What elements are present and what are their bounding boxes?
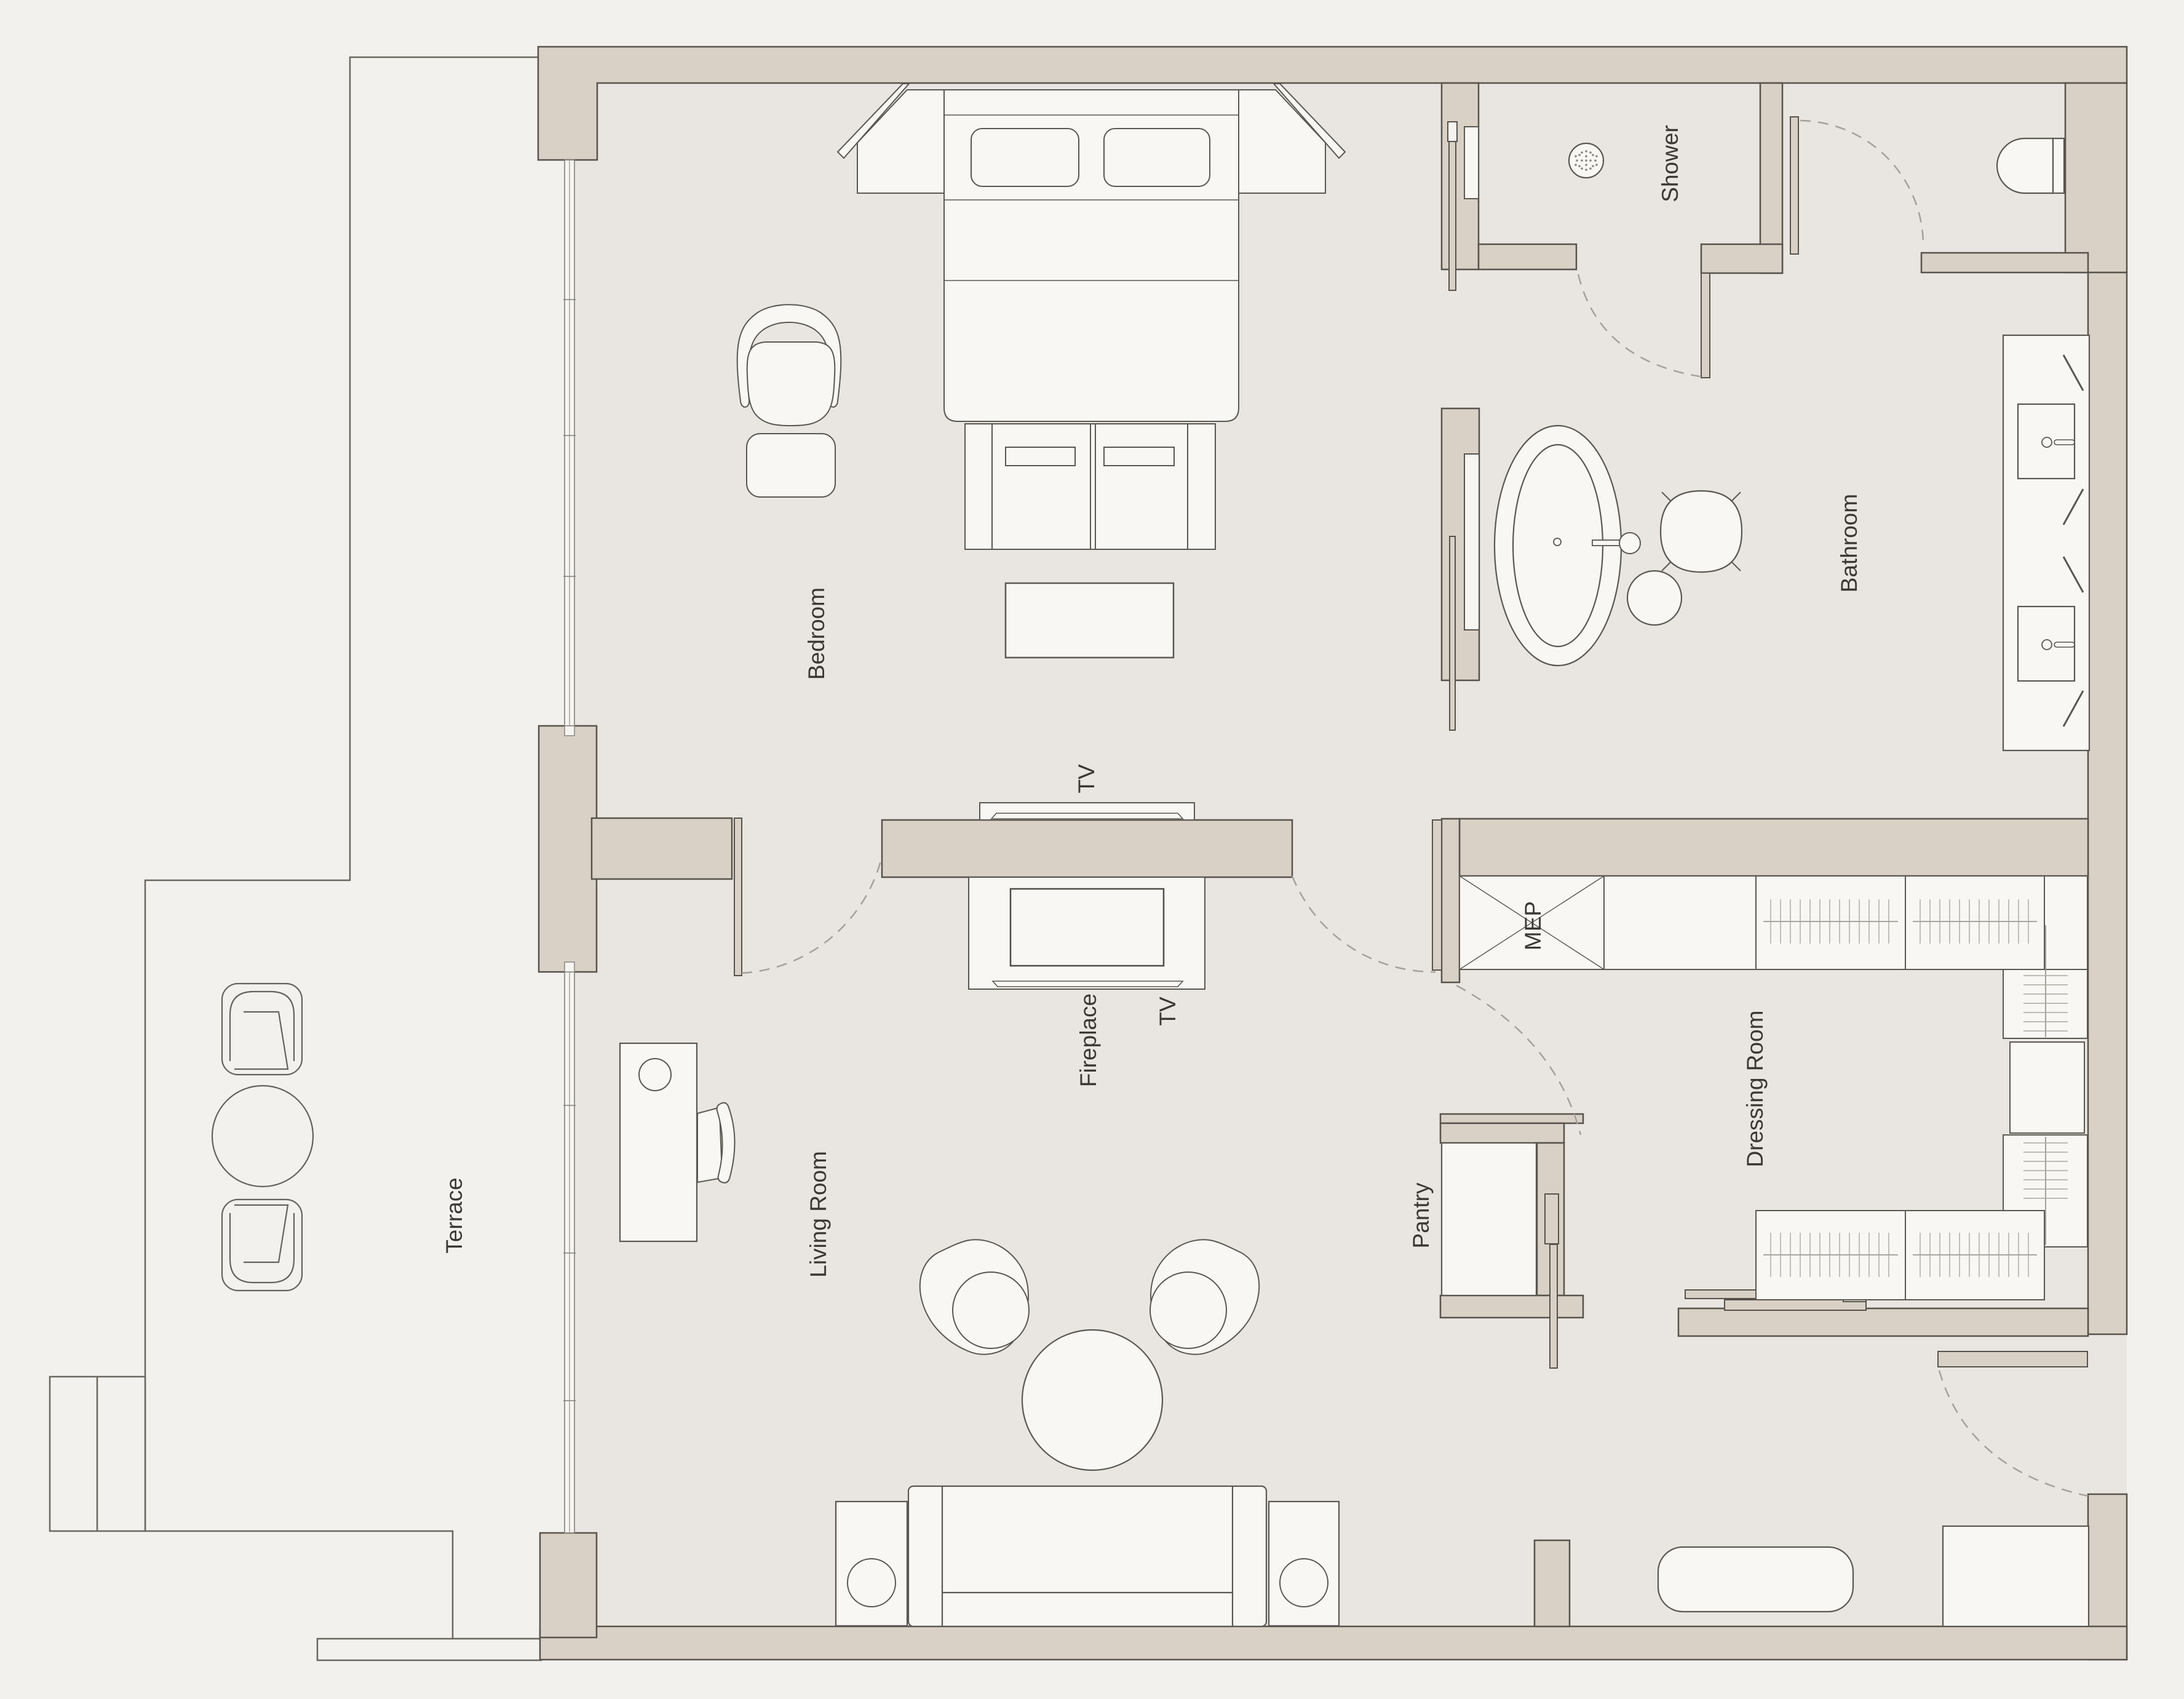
svg-text:Bathroom: Bathroom bbox=[1837, 494, 1862, 592]
svg-text:Pantry: Pantry bbox=[1408, 1182, 1434, 1248]
svg-text:Bedroom: Bedroom bbox=[804, 587, 829, 680]
svg-text:TV: TV bbox=[1155, 997, 1180, 1026]
svg-text:Fireplace: Fireplace bbox=[1076, 993, 1101, 1087]
svg-text:Shower: Shower bbox=[1658, 125, 1683, 202]
svg-text:MEP: MEP bbox=[1520, 901, 1546, 950]
svg-text:Dressing Room: Dressing Room bbox=[1742, 1011, 1768, 1168]
svg-text:Terrace: Terrace bbox=[442, 1177, 467, 1253]
svg-text:TV: TV bbox=[1074, 764, 1099, 794]
svg-text:Living Room: Living Room bbox=[806, 1151, 831, 1278]
